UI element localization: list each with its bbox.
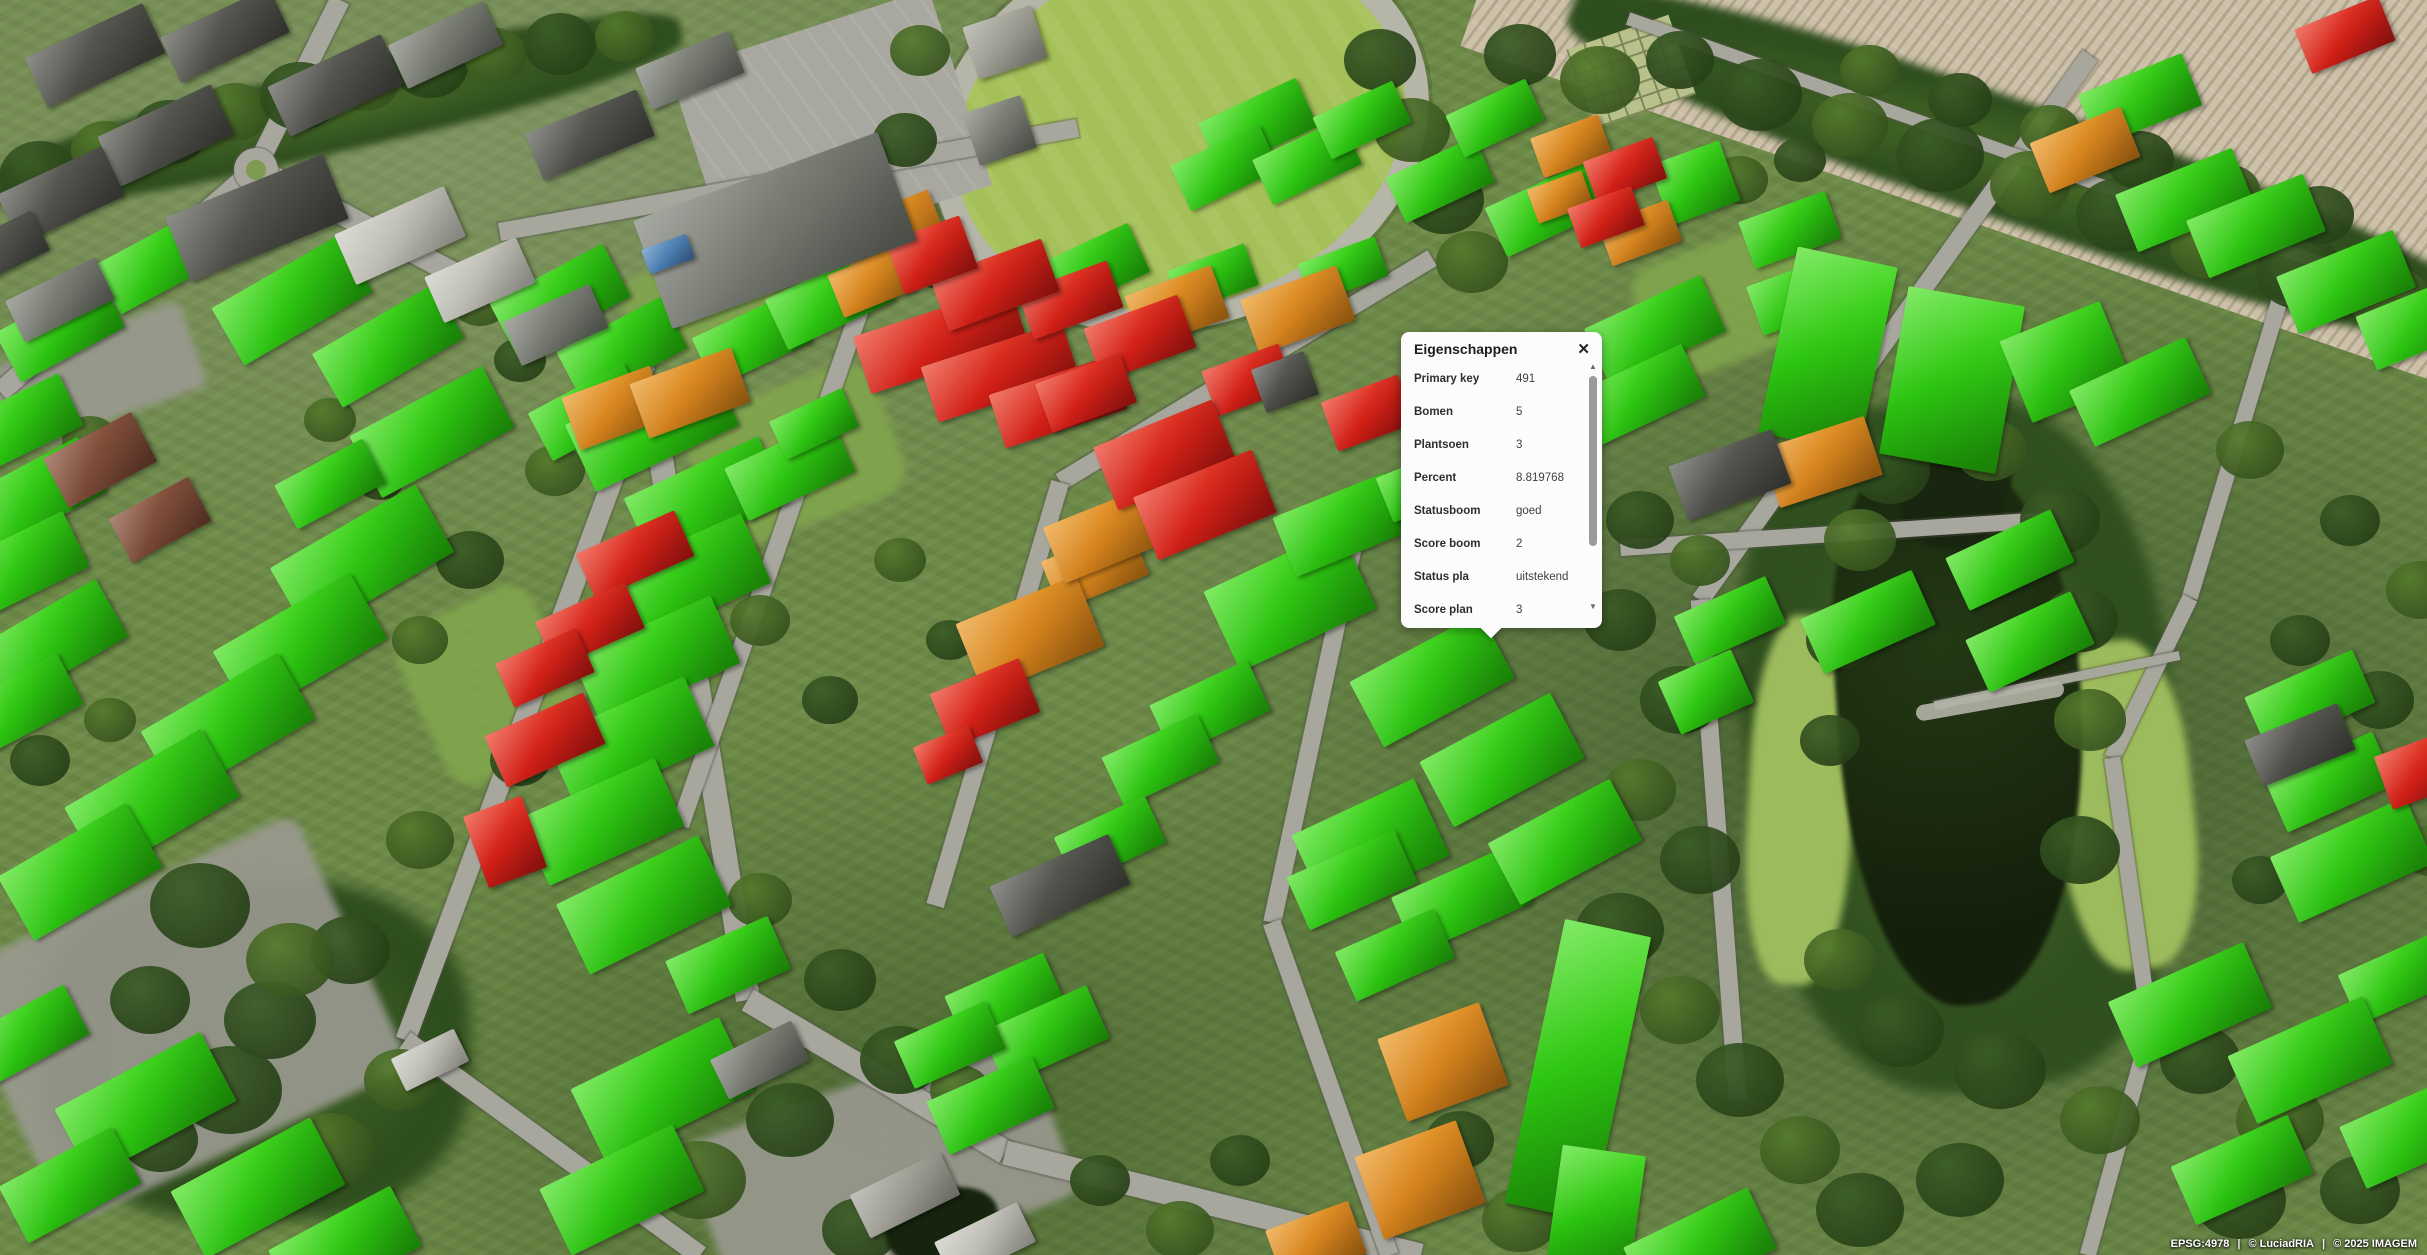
tree — [1646, 31, 1714, 89]
building-footprint[interactable] — [1488, 779, 1643, 906]
tree — [84, 698, 136, 742]
tree — [1344, 29, 1416, 90]
property-value: 2 — [1516, 538, 1522, 550]
tree — [2040, 816, 2120, 884]
property-value: 3 — [1516, 439, 1522, 451]
building-footprint — [109, 477, 212, 563]
property-label: Score plan — [1414, 604, 1516, 616]
property-value: goed — [1516, 505, 1542, 517]
property-row: Bomen5 — [1414, 395, 1582, 428]
tree — [595, 11, 655, 62]
tree — [746, 1083, 834, 1158]
property-label: Plantsoen — [1414, 439, 1516, 451]
properties-popup: Eigenschappen ✕ Primary key491Bomen5Plan… — [1401, 332, 1602, 628]
close-icon: ✕ — [1577, 341, 1590, 358]
popup-scrollbar[interactable]: ▲ ▼ — [1587, 362, 1599, 612]
property-row: Primary key491 — [1414, 362, 1582, 395]
popup-header: Eigenschappen ✕ — [1401, 332, 1602, 360]
property-label: Statusboom — [1414, 505, 1516, 517]
property-value: 8.819768 — [1516, 472, 1564, 484]
scrollbar-thumb[interactable] — [1589, 376, 1597, 546]
map-attribution: EPSG:4978|© LuciadRIA|© 2025 IMAGEM — [2168, 1238, 2420, 1250]
popup-title: Eigenschappen — [1414, 341, 1517, 357]
property-row: Statusboomgoed — [1414, 494, 1582, 527]
building-footprint[interactable] — [1377, 1002, 1509, 1122]
tree — [10, 735, 70, 786]
property-row: Score boom2 — [1414, 527, 1582, 560]
tree — [524, 13, 596, 74]
tree — [802, 676, 858, 724]
close-button[interactable]: ✕ — [1575, 342, 1592, 357]
tree — [1640, 976, 1720, 1044]
property-label: Percent — [1414, 472, 1516, 484]
attribution-epsg: EPSG:4978 — [2171, 1238, 2230, 1250]
tree — [1954, 1031, 2046, 1109]
property-label: Status pla — [1414, 571, 1516, 583]
tree — [2320, 495, 2380, 546]
tree — [1928, 73, 1992, 127]
tree — [2270, 615, 2330, 666]
property-value: 5 — [1516, 406, 1522, 418]
building-footprint — [525, 89, 655, 180]
tree — [730, 595, 790, 646]
tree — [1816, 1173, 1904, 1248]
tree — [890, 25, 950, 76]
building-footprint — [160, 0, 290, 83]
property-label: Bomen — [1414, 406, 1516, 418]
building-footprint[interactable] — [1623, 1187, 1777, 1255]
building-footprint[interactable] — [1335, 908, 1456, 1001]
building-footprint[interactable] — [1445, 79, 1544, 158]
attribution-imagem: © 2025 IMAGEM — [2333, 1238, 2417, 1250]
attribution-separator: | — [2237, 1238, 2240, 1250]
tree — [2216, 421, 2284, 479]
building-footprint — [24, 3, 165, 108]
tree — [1812, 93, 1888, 158]
scroll-up-icon[interactable]: ▲ — [1587, 362, 1599, 372]
tree — [1824, 509, 1896, 570]
tree — [1696, 1043, 1784, 1118]
tree — [1804, 929, 1876, 990]
tree — [1484, 24, 1556, 85]
map-viewport[interactable]: Eigenschappen ✕ Primary key491Bomen5Plan… — [0, 0, 2427, 1255]
tree — [804, 949, 876, 1010]
property-row: Score plan3 — [1414, 593, 1582, 626]
tree — [874, 538, 926, 582]
tree — [2386, 561, 2427, 619]
tree — [1670, 535, 1730, 586]
tree — [1718, 59, 1802, 130]
tree — [1840, 45, 1900, 96]
property-row: Status plauitstekend — [1414, 560, 1582, 593]
attribution-separator: | — [2322, 1238, 2325, 1250]
property-label: Primary key — [1414, 373, 1516, 385]
property-value: uitstekend — [1516, 571, 1568, 583]
tree — [2060, 1086, 2140, 1154]
tree — [246, 923, 334, 998]
property-label: Score boom — [1414, 538, 1516, 550]
building-footprint[interactable] — [2374, 730, 2427, 809]
tree — [1916, 1143, 2004, 1218]
attribution-luciad: © LuciadRIA — [2248, 1238, 2314, 1250]
tree — [1760, 1116, 1840, 1184]
tree — [392, 616, 448, 664]
tree — [1660, 826, 1740, 894]
property-row: Percent8.819768 — [1414, 461, 1582, 494]
tree — [150, 863, 250, 948]
tree — [2054, 689, 2126, 750]
tree — [1560, 46, 1640, 114]
property-value: 3 — [1516, 604, 1522, 616]
tree — [1896, 118, 1984, 193]
property-value: 491 — [1516, 373, 1535, 385]
popup-body: Primary key491Bomen5Plantsoen3Percent8.8… — [1401, 360, 1602, 632]
tree — [1070, 1155, 1130, 1206]
tree — [386, 811, 454, 869]
tree — [1210, 1135, 1270, 1186]
tree — [1856, 993, 1944, 1068]
scroll-down-icon[interactable]: ▼ — [1587, 602, 1599, 612]
tree — [1146, 1201, 1214, 1255]
tree — [1774, 138, 1826, 182]
tree — [110, 966, 190, 1034]
tree — [1436, 231, 1508, 292]
property-row: Plantsoen3 — [1414, 428, 1582, 461]
building-footprint[interactable] — [1546, 1145, 1646, 1255]
tree — [1606, 491, 1674, 549]
tree — [1800, 715, 1860, 766]
